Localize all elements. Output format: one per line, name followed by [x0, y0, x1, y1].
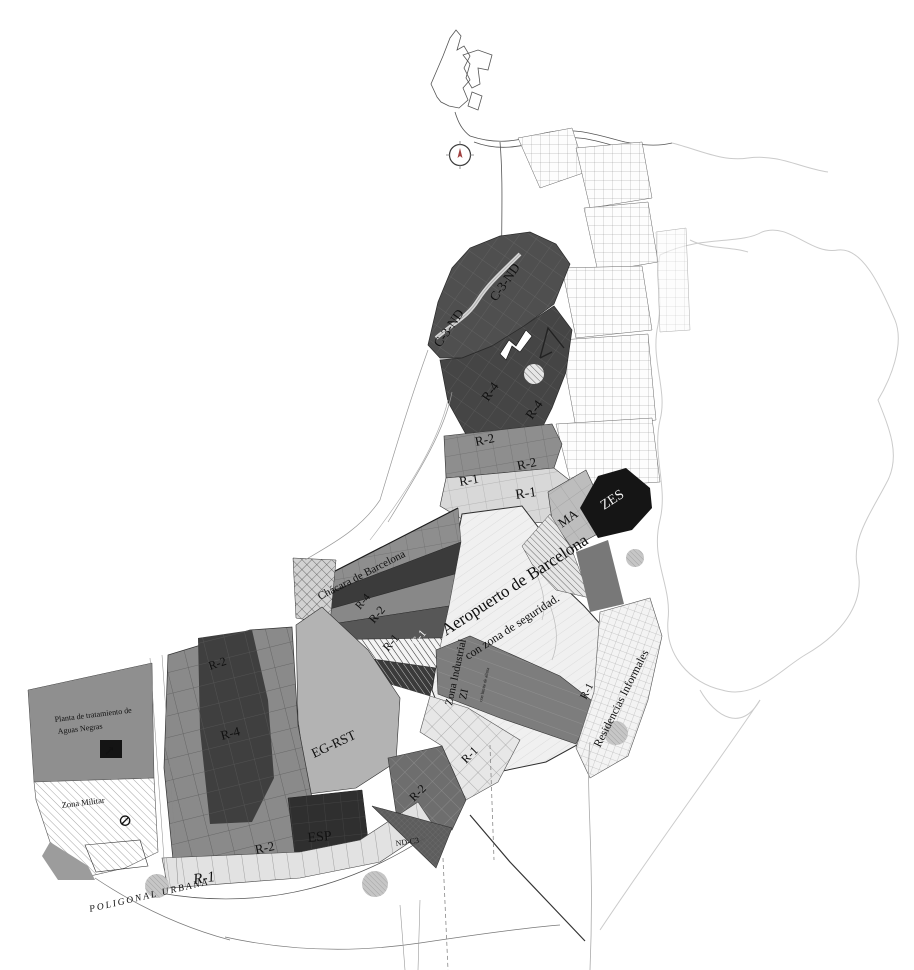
- zoning-map-canvas: C-3-ND C-3-ND R-4 R-4 R-2 R-2 R-1 R-1 MA…: [0, 0, 914, 970]
- zone-militar: [34, 778, 158, 880]
- label-r1-b: R-1: [514, 485, 537, 503]
- no-entry-icon: ⊘: [118, 811, 132, 830]
- compass-icon: [446, 141, 474, 169]
- zoning-map: C-3-ND C-3-ND R-4 R-4 R-2 R-2 R-1 R-1 MA…: [0, 0, 914, 970]
- treatment-arrow-icon: ↗: [104, 743, 115, 758]
- label-esp: ESP: [307, 829, 333, 846]
